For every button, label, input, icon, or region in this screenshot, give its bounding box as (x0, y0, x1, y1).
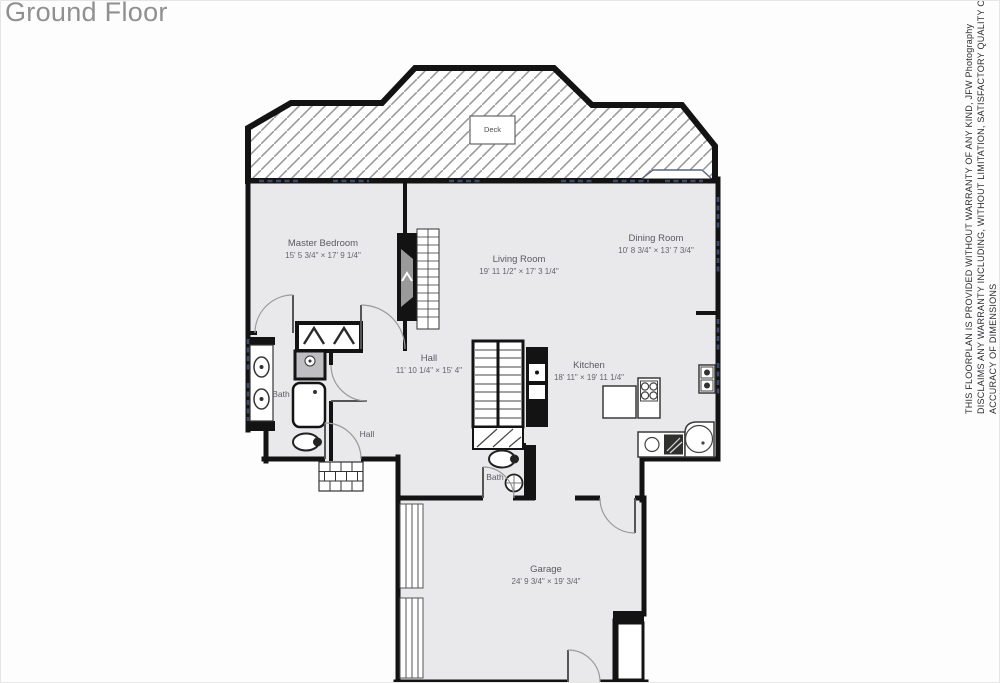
entry-porch (319, 462, 363, 491)
floorplan-page: Ground Floor (0, 0, 1000, 683)
bath2-wall (524, 445, 536, 500)
room-label-deck: Deck (470, 116, 515, 144)
disclaimer-line-1: THIS FLOORPLAN IS PROVIDED WITHOUT WARRA… (964, 24, 974, 414)
staircase (473, 341, 523, 449)
floor-plan-drawing (1, 1, 1000, 683)
disclaimer-line-3: ACCURACY OF DIMENSIONS (988, 284, 998, 414)
garage-wall-notch (613, 611, 644, 623)
fireplace (397, 229, 439, 329)
built-in-unit (526, 347, 548, 427)
bedroom-closet (297, 323, 361, 351)
garage-nook (617, 623, 643, 680)
disclaimer-line-2: DISCLAIMS ANY WARRANTY INCLUDING, WITHOU… (976, 0, 986, 414)
bathtub (293, 383, 325, 427)
island (603, 386, 636, 418)
